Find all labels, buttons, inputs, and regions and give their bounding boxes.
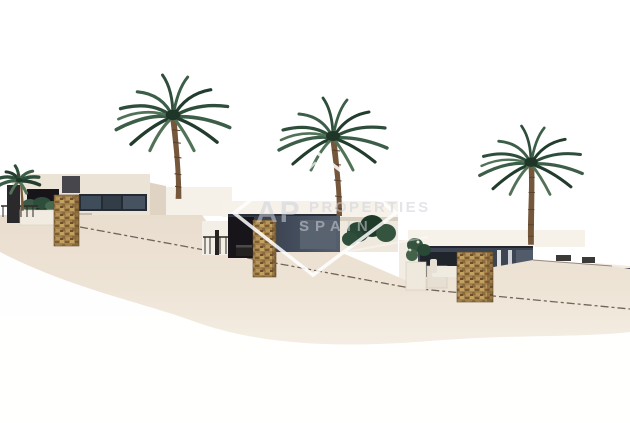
villa-left-window-pane [123, 196, 145, 209]
villa-right-planter [406, 262, 426, 290]
villa-middle-post [215, 230, 219, 255]
palm-crown [524, 157, 537, 167]
villa-right-flower [409, 249, 412, 252]
villa-middle-bench-top [236, 245, 252, 248]
villa-left-stone-pillar-shade [75, 195, 79, 246]
terrace-vent [582, 257, 595, 263]
villa-left-chimney [62, 176, 80, 193]
villa-right-chaise-back [430, 259, 437, 273]
terrace-vent [556, 255, 571, 261]
villa-right-plant [406, 249, 418, 261]
villa-right-plant [417, 244, 431, 256]
palm-crown [16, 178, 22, 183]
watermark-word1: PROPERTIES [309, 199, 431, 216]
villa-right-flower [417, 241, 420, 244]
palm-crown [166, 110, 181, 121]
villa-right-stone-pillar-shade [487, 252, 493, 302]
villa-left-window-pane [81, 196, 101, 209]
villa-left-planter [20, 210, 58, 225]
palm-crown [326, 131, 340, 141]
villa-right-fascia [408, 230, 585, 247]
render-svg: AP PROPERTIES SPAIN [0, 0, 630, 423]
watermark-word2: SPAIN [299, 218, 374, 235]
villa-left-window-pane [103, 196, 121, 209]
watermark-monogram: AP [256, 196, 302, 229]
render-image: AP PROPERTIES SPAIN [0, 0, 630, 423]
